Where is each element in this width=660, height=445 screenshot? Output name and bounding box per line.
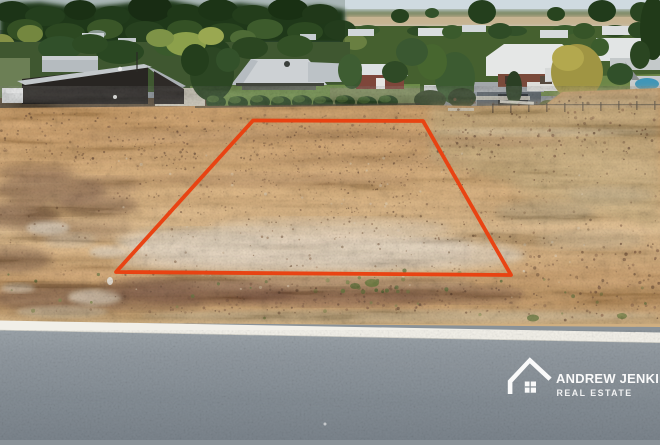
svg-text:REAL ESTATE: REAL ESTATE [557, 388, 633, 398]
svg-text:ANDREW JENKINS: ANDREW JENKINS [556, 371, 660, 386]
